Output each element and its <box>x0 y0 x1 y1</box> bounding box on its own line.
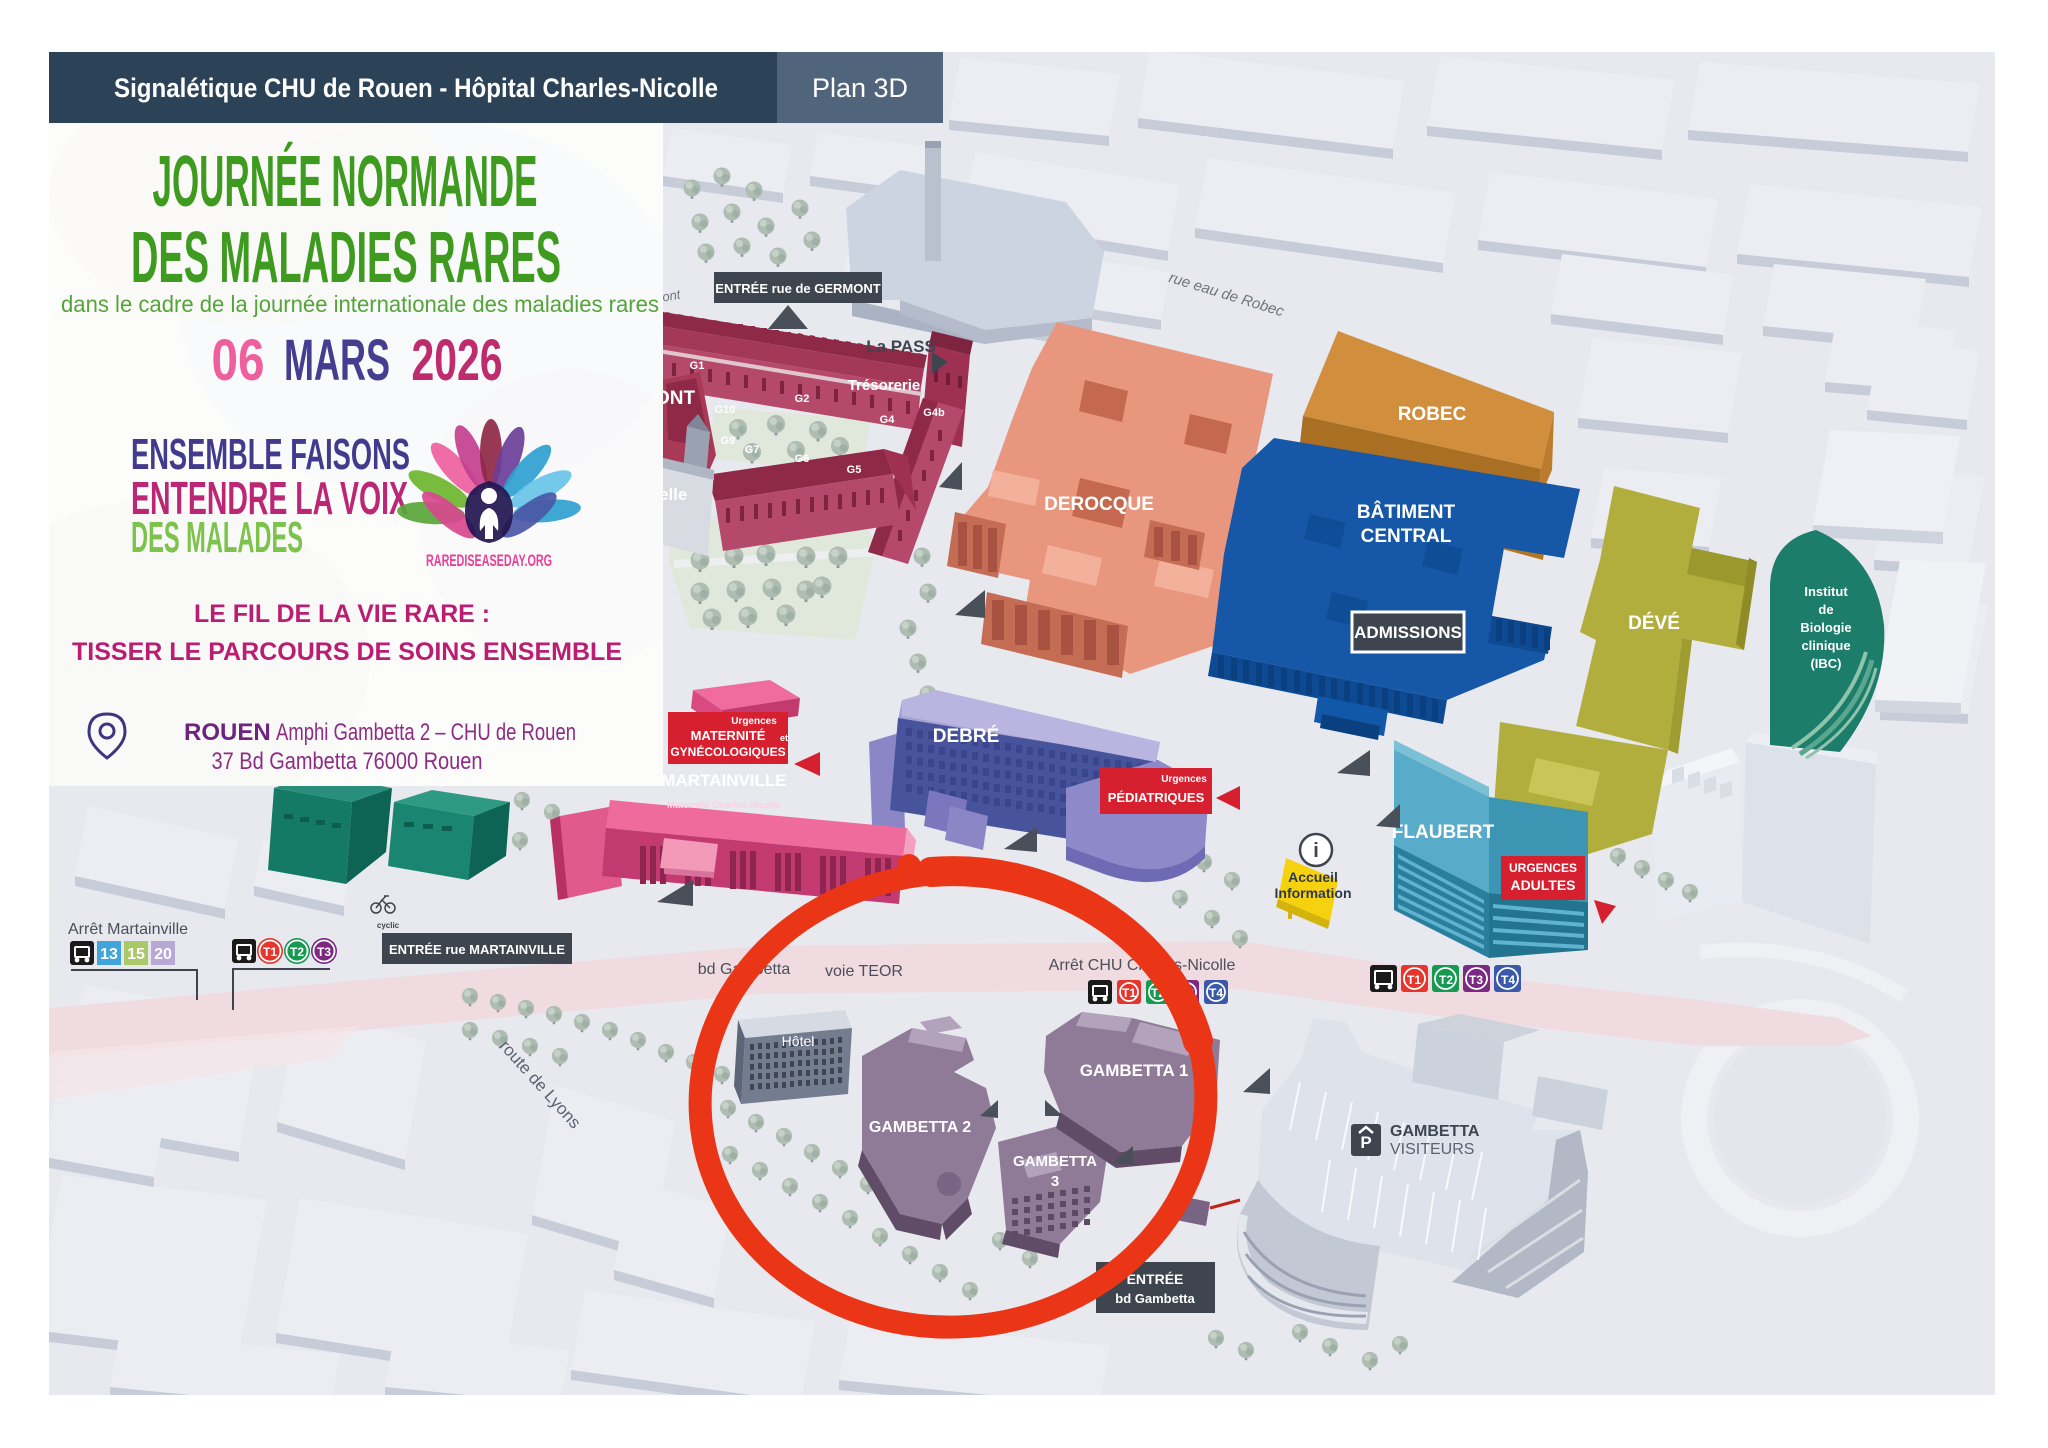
svg-text:GYNÉCOLOGIQUES: GYNÉCOLOGIQUES <box>670 744 785 759</box>
svg-text:cyclic: cyclic <box>377 921 400 930</box>
svg-text:G4b: G4b <box>923 407 945 419</box>
svg-text:GAMBETTA: GAMBETTA <box>1390 1123 1480 1140</box>
svg-text:TISSER LE PARCOURS DE SOINS EN: TISSER LE PARCOURS DE SOINS ENSEMBLE <box>72 638 622 666</box>
svg-text:bd Gambetta: bd Gambetta <box>1115 1291 1195 1306</box>
svg-text:Biologie: Biologie <box>1800 620 1851 635</box>
svg-text:Accueil: Accueil <box>1288 869 1338 885</box>
svg-text:(IBC): (IBC) <box>1810 656 1841 671</box>
svg-text:VISITEURS: VISITEURS <box>1390 1141 1474 1158</box>
svg-text:PÉDIATRIQUES: PÉDIATRIQUES <box>1108 790 1205 805</box>
svg-text:dans le cadre de la journée in: dans le cadre de la journée internationa… <box>61 291 659 317</box>
svg-text:clinique: clinique <box>1801 638 1850 653</box>
svg-text:BÂTIMENT: BÂTIMENT <box>1357 501 1456 523</box>
svg-text:T3: T3 <box>317 945 331 959</box>
svg-text:T3: T3 <box>1469 973 1483 987</box>
svg-text:ENTRÉE rue MARTAINVILLE: ENTRÉE rue MARTAINVILLE <box>389 942 565 957</box>
svg-text:Urgences: Urgences <box>1161 774 1207 785</box>
svg-text:GAMBETTA: GAMBETTA <box>1013 1153 1097 1170</box>
svg-text:DÉVÉ: DÉVÉ <box>1628 612 1680 634</box>
svg-text:G2: G2 <box>795 393 810 405</box>
svg-text:ADULTES: ADULTES <box>1510 877 1575 893</box>
svg-text:RAREDISEASEDAY.ORG: RAREDISEASEDAY.ORG <box>426 551 552 570</box>
svg-text:ROBEC: ROBEC <box>1398 404 1467 425</box>
svg-text:2026: 2026 <box>412 328 503 393</box>
svg-text:DES MALADIES RARES: DES MALADIES RARES <box>131 218 561 298</box>
svg-text:T2: T2 <box>290 945 304 959</box>
svg-text:LE FIL DE LA VIE RARE :: LE FIL DE LA VIE RARE : <box>194 600 490 628</box>
svg-text:P: P <box>1360 1133 1371 1152</box>
svg-text:ENTRÉE: ENTRÉE <box>1127 1271 1184 1287</box>
svg-text:DEROCQUE: DEROCQUE <box>1044 494 1154 515</box>
svg-text:13: 13 <box>100 946 118 963</box>
svg-text:MARS: MARS <box>284 328 390 393</box>
svg-text:3: 3 <box>1051 1173 1059 1190</box>
svg-text:ENTRÉE rue de GERMONT: ENTRÉE rue de GERMONT <box>715 281 880 296</box>
svg-text:DES MALADES: DES MALADES <box>131 513 303 562</box>
svg-text:Hôtel: Hôtel <box>782 1033 815 1049</box>
svg-text:G7: G7 <box>745 444 760 456</box>
svg-text:Maternité Charles-Nicolle: Maternité Charles-Nicolle <box>667 800 781 811</box>
svg-text:20: 20 <box>154 946 172 963</box>
svg-text:G5: G5 <box>847 464 862 476</box>
svg-text:G9: G9 <box>721 435 736 447</box>
svg-text:et: et <box>780 733 788 743</box>
svg-text:voie TEOR: voie TEOR <box>825 963 903 980</box>
svg-text:T4: T4 <box>1501 973 1515 987</box>
svg-text:G6: G6 <box>795 453 810 465</box>
svg-text:37 Bd Gambetta 76000 Rouen: 37 Bd Gambetta 76000 Rouen <box>212 748 483 775</box>
svg-text:Trésorerie: Trésorerie <box>848 377 921 394</box>
svg-text:T1: T1 <box>263 945 277 959</box>
svg-text:FLAUBERT: FLAUBERT <box>1392 822 1495 843</box>
svg-text:ROUEN: ROUEN <box>184 719 271 746</box>
svg-text:La PASS: La PASS <box>866 337 936 356</box>
svg-text:MATERNITÉ: MATERNITÉ <box>691 728 766 743</box>
svg-text:URGENCES: URGENCES <box>1509 861 1577 875</box>
svg-text:CENTRAL: CENTRAL <box>1361 526 1452 547</box>
svg-text:Urgences: Urgences <box>731 716 777 727</box>
svg-text:T1: T1 <box>1122 986 1136 1000</box>
svg-text:Plan 3D: Plan 3D <box>812 73 908 103</box>
svg-text:T2: T2 <box>1439 973 1453 987</box>
svg-text:Amphi Gambetta 2 – CHU de Roue: Amphi Gambetta 2 – CHU de Rouen <box>276 719 576 746</box>
svg-text:06: 06 <box>212 328 265 393</box>
svg-text:Arrêt Martainville: Arrêt Martainville <box>68 921 188 938</box>
svg-text:15: 15 <box>127 946 145 963</box>
svg-text:Signalétique CHU de Rouen - Hô: Signalétique CHU de Rouen - Hôpital Char… <box>114 73 718 103</box>
svg-text:Institut: Institut <box>1804 584 1848 599</box>
svg-text:DEBRÉ: DEBRÉ <box>933 725 1000 747</box>
svg-text:GAMBETTA 1: GAMBETTA 1 <box>1080 1061 1189 1080</box>
svg-text:G10: G10 <box>715 404 736 416</box>
svg-text:T4: T4 <box>1209 986 1223 1000</box>
svg-text:ADMISSIONS: ADMISSIONS <box>1354 623 1462 642</box>
svg-text:JOURNÉE NORMANDE: JOURNÉE NORMANDE <box>153 142 538 222</box>
svg-text:G4: G4 <box>880 414 896 426</box>
svg-text:MARTAINVILLE: MARTAINVILLE <box>661 771 786 790</box>
svg-text:GAMBETTA 2: GAMBETTA 2 <box>869 1119 971 1136</box>
svg-text:i: i <box>1313 840 1319 862</box>
svg-text:G1: G1 <box>690 360 705 372</box>
svg-text:de: de <box>1818 602 1833 617</box>
svg-text:Information: Information <box>1275 885 1352 901</box>
svg-text:T1: T1 <box>1407 973 1421 987</box>
